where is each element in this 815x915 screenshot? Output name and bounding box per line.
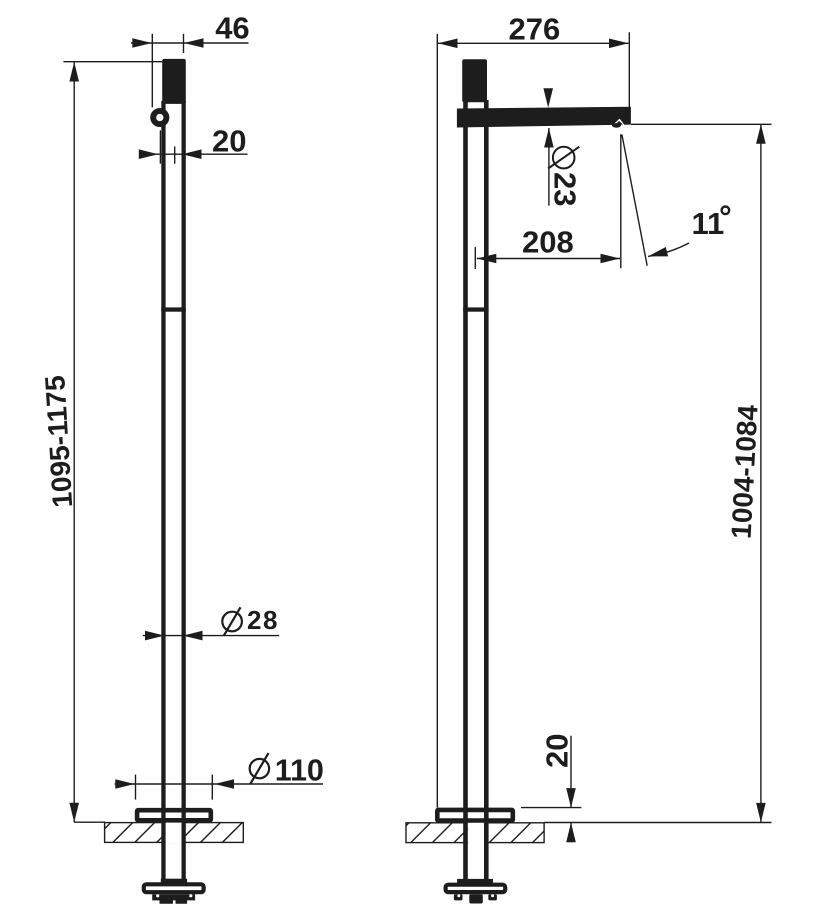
svg-text:20: 20: [540, 734, 575, 768]
svg-text:208: 208: [522, 225, 574, 260]
svg-text:110: 110: [275, 753, 324, 787]
svg-text:20: 20: [212, 124, 246, 159]
svg-text:276: 276: [509, 12, 561, 47]
svg-text:11: 11: [692, 206, 725, 241]
svg-text:46: 46: [215, 11, 249, 46]
svg-text:28: 28: [247, 605, 279, 635]
svg-text:23: 23: [548, 172, 583, 206]
